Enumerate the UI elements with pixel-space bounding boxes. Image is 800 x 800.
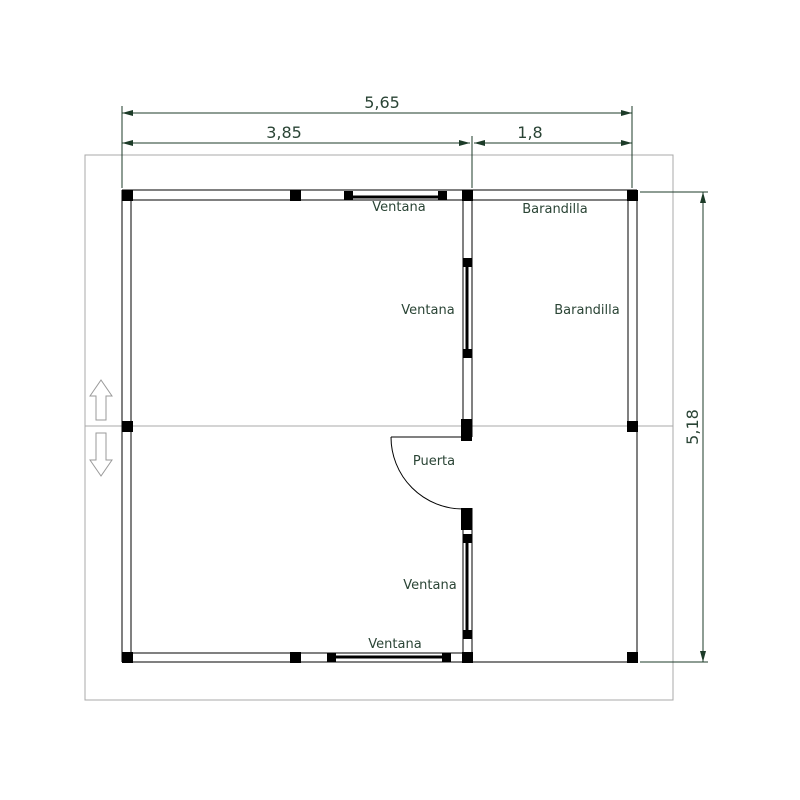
page-frame [85,155,673,700]
dim-porch-width: 1,8 [517,123,542,142]
dim-room-width: 3,85 [266,123,302,142]
label-railing-top: Barandilla [522,202,588,217]
direction-arrows [90,380,112,476]
floor-plan-drawing: 5,65 3,85 1,8 5,18 Ventana Barandilla Ve… [0,0,800,800]
floor-plan-page: 5,65 3,85 1,8 5,18 Ventana Barandilla Ve… [0,0,800,800]
dim-total-width: 5,65 [364,93,400,112]
door-swing [391,437,463,509]
label-window-top: Ventana [372,200,425,215]
label-railing-right: Barandilla [554,303,620,318]
arrow-down-icon [90,433,112,476]
dim-total-depth: 5,18 [683,409,702,445]
label-window-bottom: Ventana [368,637,421,652]
arrow-up-icon [90,380,112,420]
label-window-mid-upper: Ventana [401,303,454,318]
label-window-mid-lower: Ventana [403,578,456,593]
label-door: Puerta [413,454,455,469]
